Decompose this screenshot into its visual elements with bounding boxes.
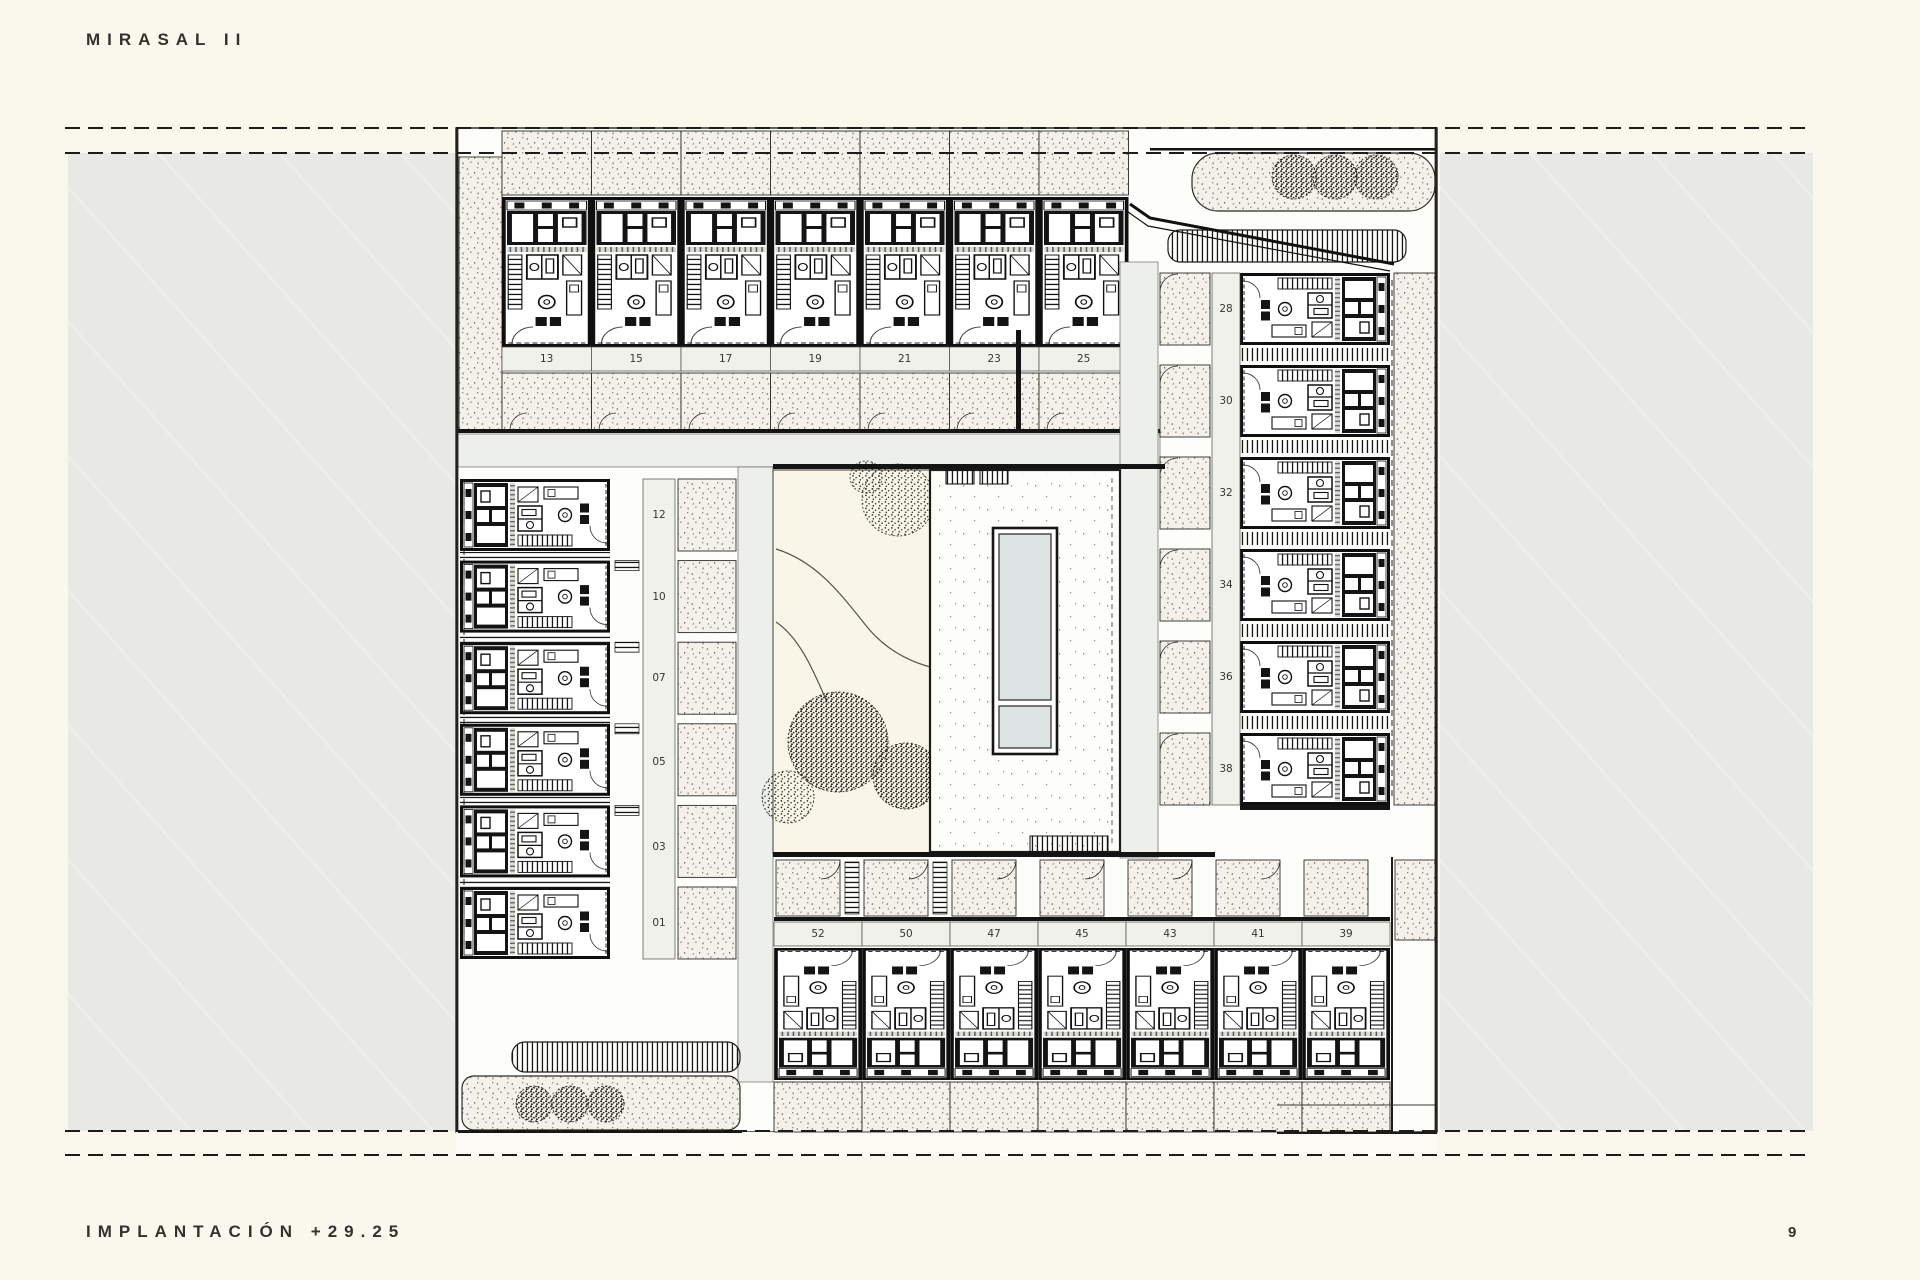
swimming-pool bbox=[993, 528, 1057, 754]
unit-number-label: 03 bbox=[652, 841, 665, 853]
left-column-units bbox=[460, 479, 610, 959]
housing-unit bbox=[683, 199, 769, 346]
site-boundary-dashed-line-top-inner bbox=[65, 152, 1813, 154]
unit-number-label: 07 bbox=[652, 672, 665, 684]
page-number: 9 bbox=[1788, 1224, 1798, 1241]
pool-deck-grate bbox=[946, 470, 974, 484]
courtyard-north-wall bbox=[773, 464, 1165, 469]
tree bbox=[516, 1086, 552, 1122]
unit-number-label: 30 bbox=[1219, 395, 1232, 407]
housing-unit bbox=[951, 199, 1037, 346]
unit-number-label: 01 bbox=[652, 917, 665, 929]
housing-unit bbox=[462, 889, 609, 958]
unit-number-label: 19 bbox=[809, 353, 822, 365]
southwest-ramp bbox=[512, 1042, 740, 1072]
unit-number-label: 47 bbox=[987, 928, 1000, 940]
housing-unit bbox=[862, 199, 948, 346]
housing-unit bbox=[462, 725, 609, 794]
housing-unit bbox=[462, 807, 609, 876]
project-title: MIRASAL II bbox=[86, 30, 247, 50]
north-corridor bbox=[458, 434, 1160, 467]
unit-number-label: 10 bbox=[652, 591, 665, 603]
unit-number-label: 15 bbox=[630, 353, 643, 365]
unit-number-label: 28 bbox=[1219, 303, 1232, 315]
site-boundary-dashed-line-bottom-outer bbox=[65, 1154, 1813, 1156]
pool-main-basin bbox=[999, 534, 1051, 700]
tree bbox=[788, 692, 888, 792]
unit-number-label: 45 bbox=[1075, 928, 1088, 940]
bottom-row-number-strip: 52 50 47 45 43 41 39 bbox=[774, 922, 1390, 946]
tree bbox=[1354, 155, 1398, 199]
pool-deck-grate bbox=[1030, 836, 1108, 852]
tree bbox=[1313, 155, 1357, 199]
housing-unit bbox=[1216, 949, 1300, 1078]
housing-unit bbox=[1242, 643, 1389, 712]
housing-unit bbox=[1242, 459, 1389, 528]
unit-number-label: 21 bbox=[898, 353, 911, 365]
unit-number-label: 41 bbox=[1251, 928, 1264, 940]
housing-unit bbox=[1242, 367, 1389, 436]
plan-west-wall bbox=[456, 128, 458, 1132]
housing-unit bbox=[1128, 949, 1212, 1078]
housing-unit bbox=[1242, 275, 1389, 344]
unit-number-label: 34 bbox=[1219, 579, 1233, 591]
top-row-patios bbox=[458, 373, 1160, 433]
housing-unit bbox=[1040, 949, 1124, 1078]
housing-unit bbox=[504, 199, 590, 346]
housing-unit bbox=[1304, 949, 1388, 1078]
housing-unit bbox=[1041, 199, 1127, 346]
site-plan: 13 15 17 19 21 23 25 bbox=[455, 120, 1440, 1160]
unit-number-label: 13 bbox=[540, 353, 553, 365]
right-column-numbers: 28 30 32 34 36 38 bbox=[1212, 273, 1240, 805]
tree bbox=[862, 464, 934, 536]
bottom-row-front-gardens bbox=[774, 1082, 1390, 1132]
top-row-number-strip: 13 15 17 19 21 23 25 bbox=[502, 347, 1129, 371]
pool-deck-grate bbox=[980, 470, 1008, 484]
housing-unit bbox=[864, 949, 948, 1078]
site-plan-drawing: 13 15 17 19 21 23 25 bbox=[455, 120, 1440, 1160]
left-column-numbers: 12 10 07 05 03 01 bbox=[643, 479, 675, 959]
southwest-planting bbox=[458, 1076, 742, 1133]
unit-number-label: 05 bbox=[652, 756, 665, 768]
unit-number-label: 38 bbox=[1219, 763, 1232, 775]
right-grey-panel bbox=[1440, 153, 1813, 1131]
courtyard-south-wall bbox=[773, 852, 1215, 857]
left-grey-panel bbox=[68, 153, 455, 1131]
site-boundary-dashed-line-bottom-inner bbox=[65, 1130, 1813, 1132]
housing-unit bbox=[462, 644, 609, 713]
housing-unit bbox=[776, 949, 860, 1078]
west-court-corridor bbox=[738, 467, 773, 1082]
unit-number-label: 39 bbox=[1339, 928, 1352, 940]
housing-unit bbox=[462, 481, 609, 550]
housing-unit bbox=[462, 562, 609, 631]
housing-unit bbox=[593, 199, 679, 346]
unit-number-label: 32 bbox=[1219, 487, 1232, 499]
unit-number-label: 50 bbox=[899, 928, 912, 940]
unit-number-label: 12 bbox=[652, 509, 665, 521]
unit-number-label: 52 bbox=[811, 928, 824, 940]
housing-unit bbox=[772, 199, 858, 346]
unit-number-label: 23 bbox=[988, 353, 1001, 365]
east-court-corridor bbox=[1120, 262, 1158, 858]
plan-east-wall bbox=[1435, 128, 1437, 1132]
tree bbox=[552, 1086, 588, 1122]
housing-unit bbox=[1242, 735, 1389, 804]
unit-number-label: 25 bbox=[1077, 353, 1090, 365]
plan-bottom-road bbox=[456, 1132, 1437, 1156]
site-boundary-dashed-line-top-outer bbox=[65, 127, 1813, 129]
housing-unit bbox=[1242, 551, 1389, 620]
housing-unit bbox=[952, 949, 1036, 1078]
top-row-units bbox=[504, 199, 1127, 346]
unit-number-label: 17 bbox=[719, 353, 732, 365]
pool-small-basin bbox=[999, 706, 1051, 748]
unit-number-label: 36 bbox=[1219, 671, 1233, 683]
unit-number-label: 43 bbox=[1163, 928, 1176, 940]
drawing-caption: IMPLANTACIÓN +29.25 bbox=[86, 1222, 405, 1242]
bottom-row-units bbox=[776, 949, 1388, 1078]
tree bbox=[588, 1086, 624, 1122]
tree bbox=[1272, 155, 1316, 199]
